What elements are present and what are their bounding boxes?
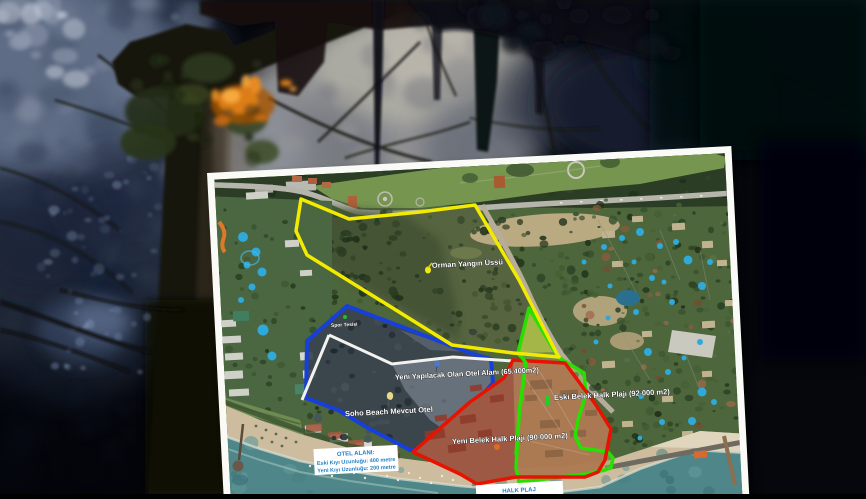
svg-text:HALK PLAJ: HALK PLAJ	[502, 487, 536, 494]
